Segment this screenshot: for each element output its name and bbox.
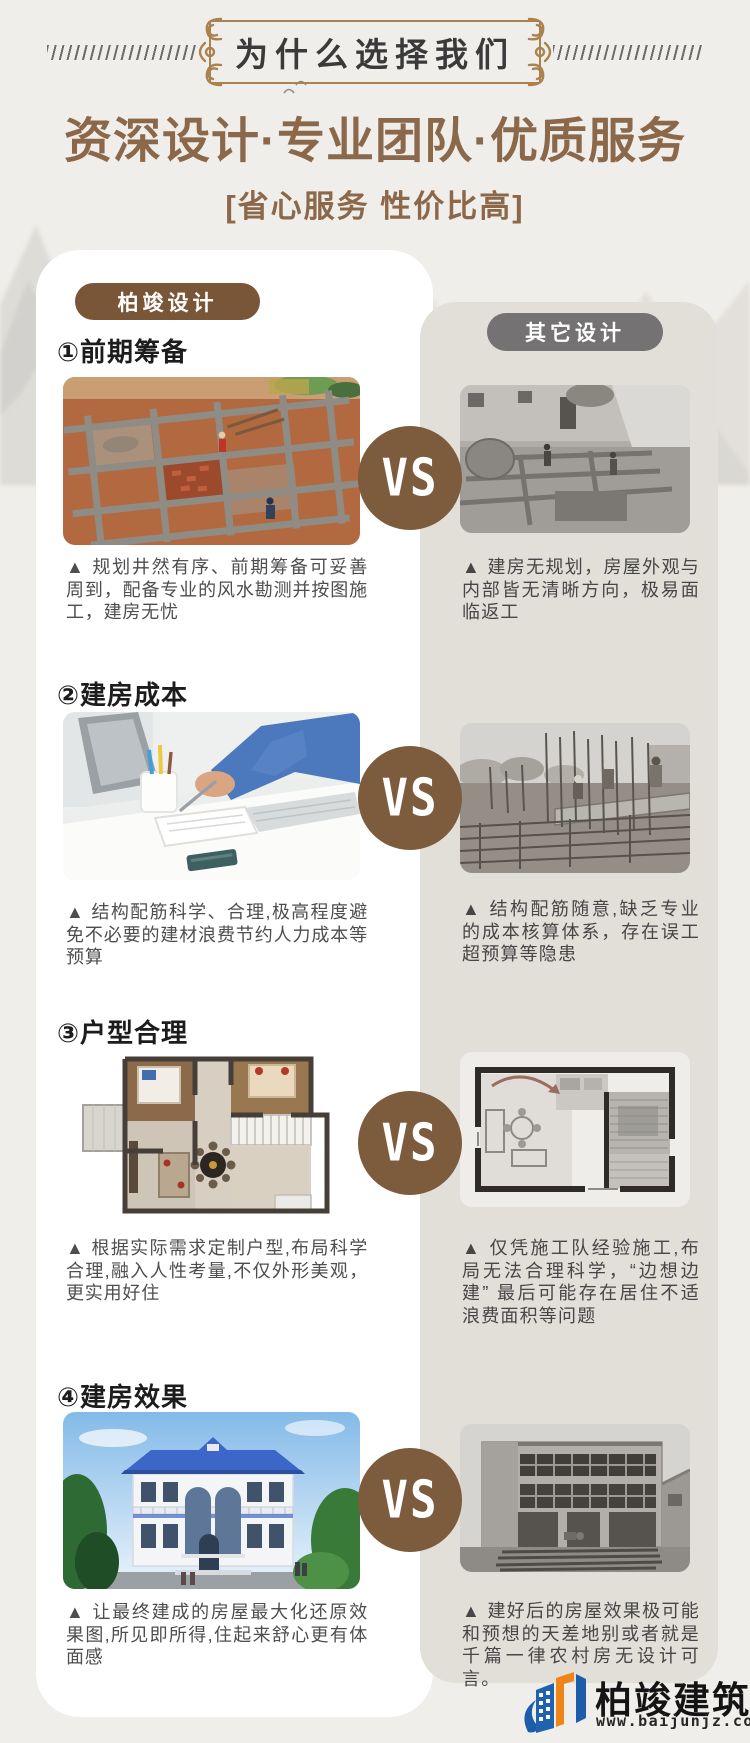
hatch-lines-left: [47, 45, 197, 60]
vs-badge: VS: [358, 746, 462, 850]
vs-badge: VS: [358, 426, 462, 530]
promo-page: 为什么选择我们 资深设计·专业团队·优质服务 [省心服务 性价比高] 柏竣设计 …: [0, 0, 750, 1743]
banner-frame: 为什么选择我们: [209, 20, 541, 84]
baijun-text-result: ▲ 让最终建成的房屋最大化还原效果图,所见即所得,住起来舒心更有体面感: [66, 1601, 368, 1669]
photo-other-floorplan: [460, 1052, 690, 1207]
hatch-lines-right: [553, 45, 703, 60]
banner-title: 为什么选择我们: [235, 36, 515, 73]
section-heading-preparation: ①前期筹备: [57, 332, 188, 369]
baijun-text-preparation: ▲ 规划井然有序、前期筹备可妥善周到，配备专业的风水勘测并按图施工，建房无忧: [66, 556, 368, 624]
other-text-floorplan: ▲ 仅凭施工队经验施工,布局无法合理科学，“边想边建” 最后可能存在居住不适浪费…: [462, 1237, 700, 1327]
photo-baijun-preparation: [63, 377, 360, 545]
photo-baijun-cost: [63, 712, 360, 880]
other-text-preparation: ▲ 建房无规划，房屋外观与内部皆无清晰方向，极易面临返工: [462, 556, 700, 624]
photo-other-result: [460, 1424, 690, 1572]
photo-baijun-floorplan: [63, 1045, 360, 1222]
page-title: 资深设计·专业团队·优质服务: [0, 101, 750, 171]
other-design-badge: 其它设计: [487, 313, 663, 351]
cloud-ornament-icon: [191, 13, 231, 91]
baijun-text-cost: ▲ 结构配筋科学、合理,极高程度避免不必要的建材浪费节约人力成本等预算: [66, 901, 368, 969]
section-heading-result: ④建房效果: [57, 1377, 188, 1414]
vs-badge: VS: [358, 1091, 462, 1195]
header-banner: 为什么选择我们: [0, 20, 750, 84]
page-subtitle: [省心服务 性价比高]: [0, 181, 750, 226]
company-website: www.baijunjz.com: [596, 1712, 750, 1730]
baijun-design-badge: 柏竣设计: [75, 283, 260, 320]
baijun-text-floorplan: ▲ 根据实际需求定制户型,布局科学合理,融入人性考量,不仅外形美观，更实用好住: [66, 1237, 368, 1305]
company-logo-icon: [518, 1666, 594, 1738]
other-text-cost: ▲ 结构配筋随意,缺乏专业的成本核算体系，存在误工超预算等隐患: [462, 898, 700, 966]
section-heading-cost: ②建房成本: [57, 675, 188, 712]
photo-other-cost: [460, 723, 690, 873]
vs-badge: VS: [358, 1448, 462, 1552]
photo-other-preparation: [460, 385, 690, 533]
cloud-ornament-icon: [519, 13, 559, 91]
photo-baijun-result: [63, 1412, 360, 1589]
